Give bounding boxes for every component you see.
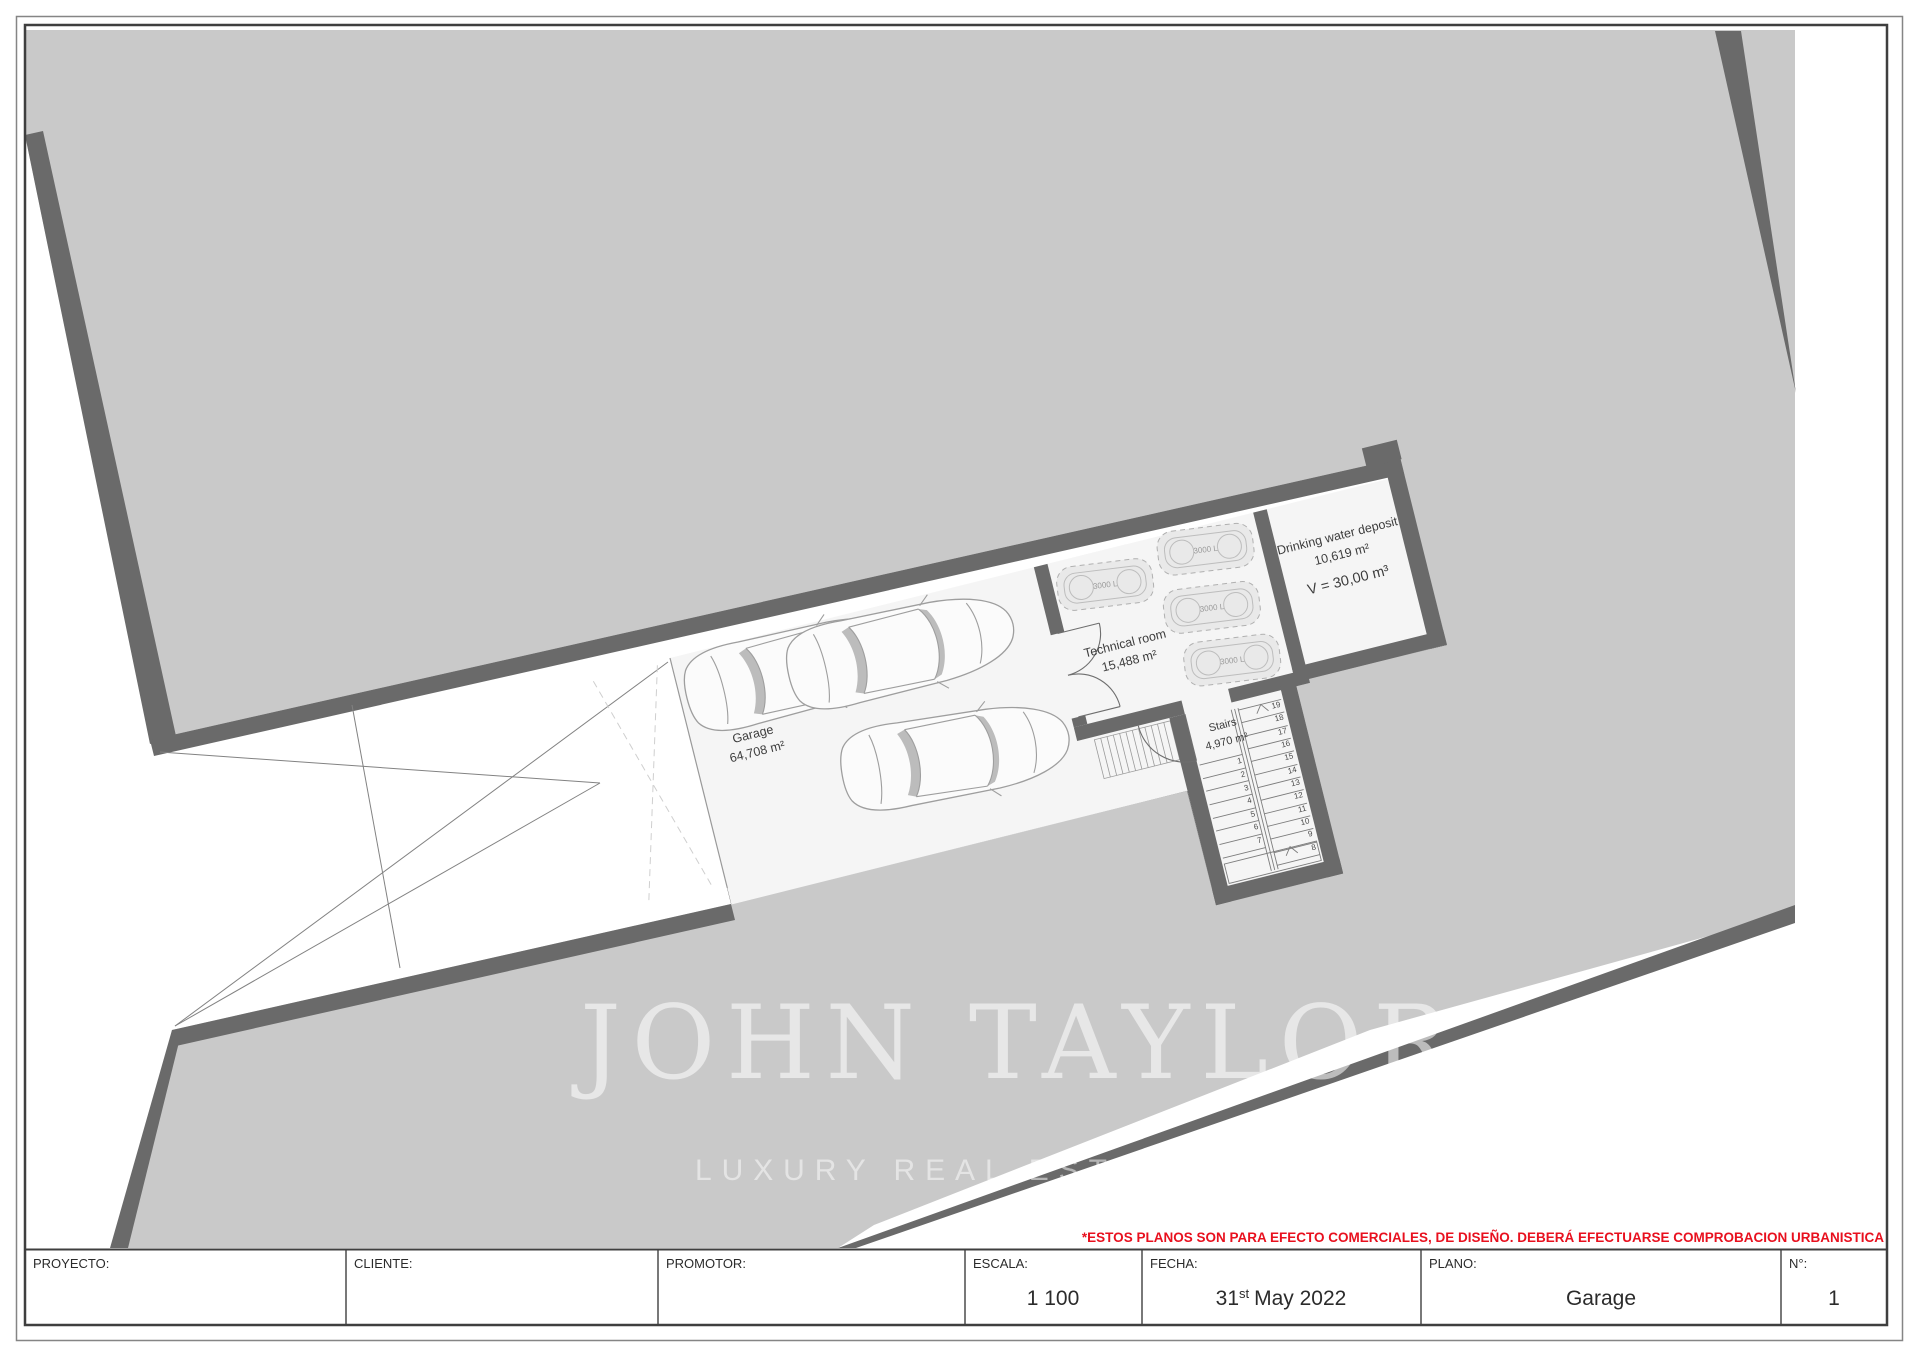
proyecto-label: PROYECTO:	[33, 1256, 109, 1271]
watermark-brand: JOHN TAYLOR	[571, 984, 1453, 1103]
escala-label: ESCALA:	[973, 1256, 1028, 1271]
title-block-values: 1 100 31stMay 2022 Garage 1	[1027, 1286, 1840, 1310]
title-block-labels: PROYECTO: CLIENTE: PROMOTOR: ESCALA: FEC…	[33, 1256, 1807, 1271]
fecha-label: FECHA:	[1150, 1256, 1198, 1271]
ramp-guide-line	[160, 752, 600, 783]
drawing-sheet: 3000 L 3000 L 3000 L 3000	[0, 0, 1920, 1358]
numero-label: N°:	[1789, 1256, 1807, 1271]
plano-label: PLANO:	[1429, 1256, 1477, 1271]
floor-plan-canvas: 3000 L 3000 L 3000 L 3000	[0, 0, 1920, 1358]
escala-value: 1 100	[1027, 1287, 1080, 1310]
disclaimer-text: *ESTOS PLANOS SON PARA EFECTO COMERCIALE…	[1082, 1230, 1884, 1245]
numero-value: 1	[1828, 1287, 1840, 1310]
ramp-divider-line	[352, 705, 400, 968]
plano-value: Garage	[1566, 1287, 1636, 1310]
promotor-label: PROMOTOR:	[666, 1256, 746, 1271]
fecha-value: 31stMay 2022	[1216, 1286, 1347, 1310]
cliente-label: CLIENTE:	[354, 1256, 413, 1271]
